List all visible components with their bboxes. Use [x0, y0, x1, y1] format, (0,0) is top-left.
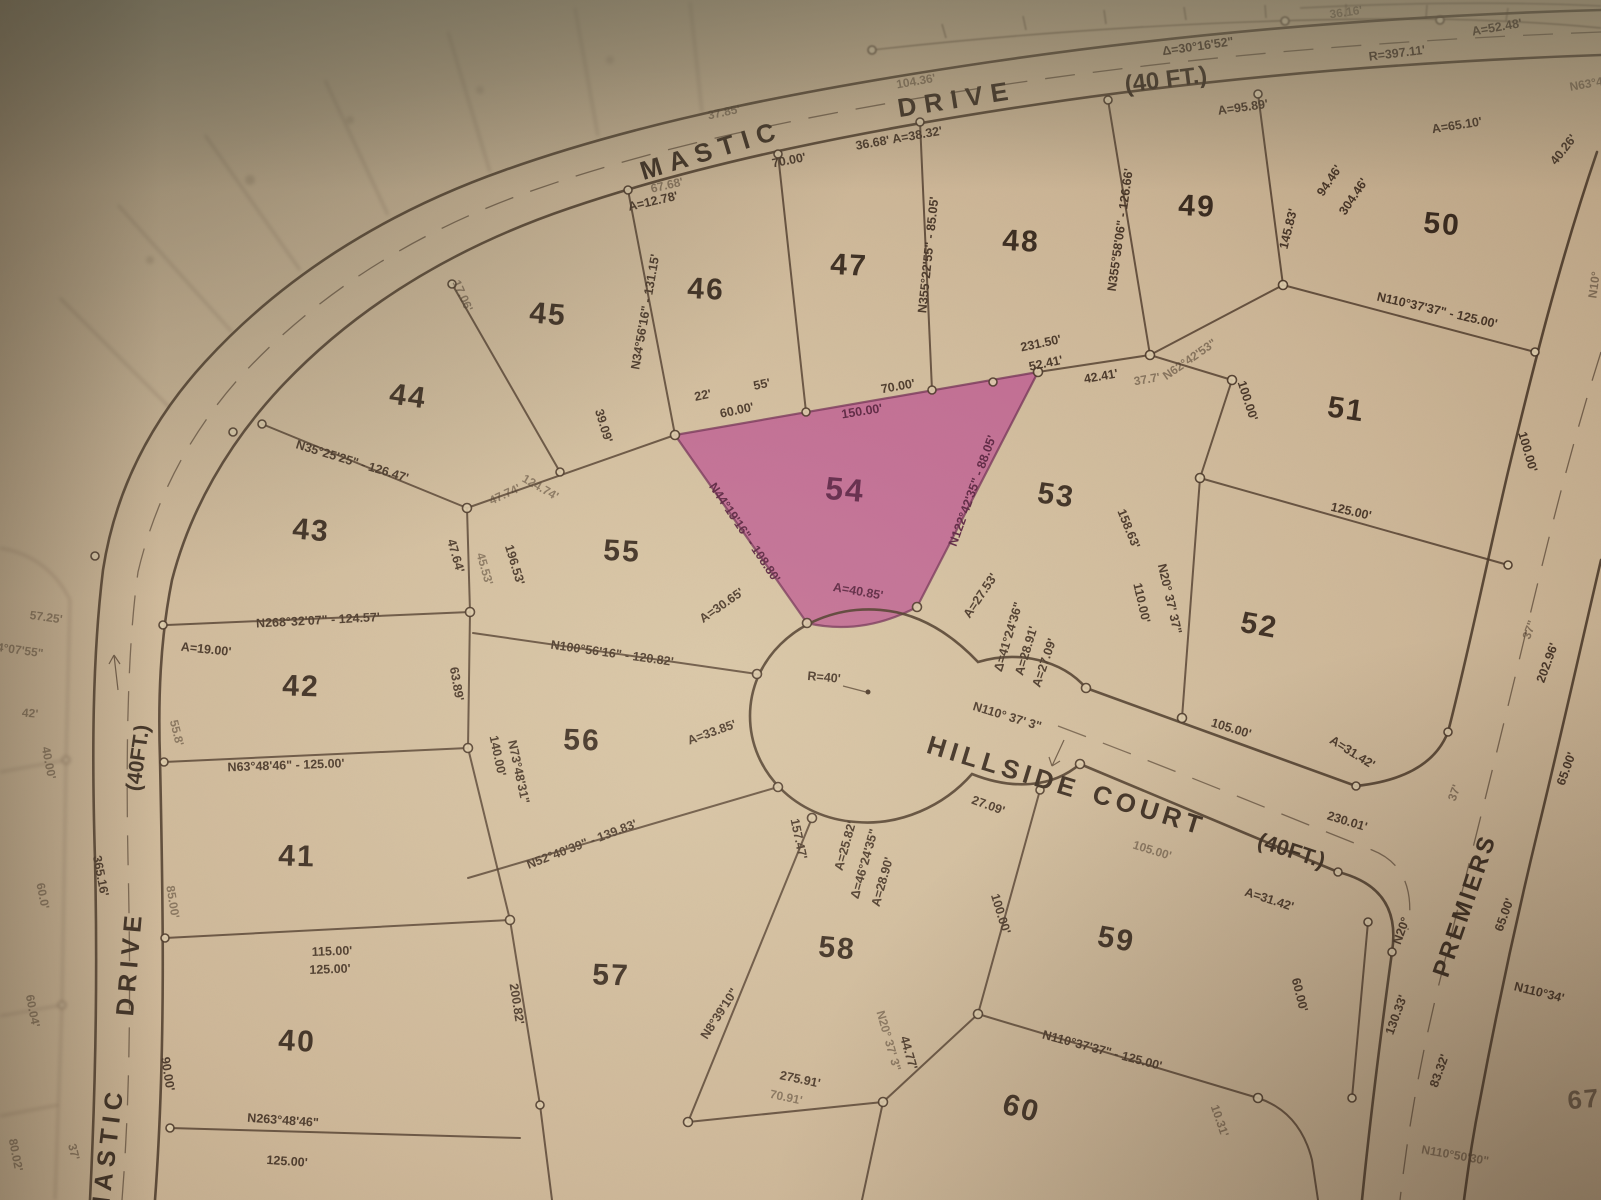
- plat-map-svg: MASTICDRIVE(40 FT.)(40FT.)DRIVEMASTICHIL…: [0, 0, 1601, 1200]
- plat-map-photo: MASTICDRIVE(40 FT.)(40FT.)DRIVEMASTICHIL…: [0, 0, 1601, 1200]
- light-sheen-overlay: [0, 0, 1601, 1200]
